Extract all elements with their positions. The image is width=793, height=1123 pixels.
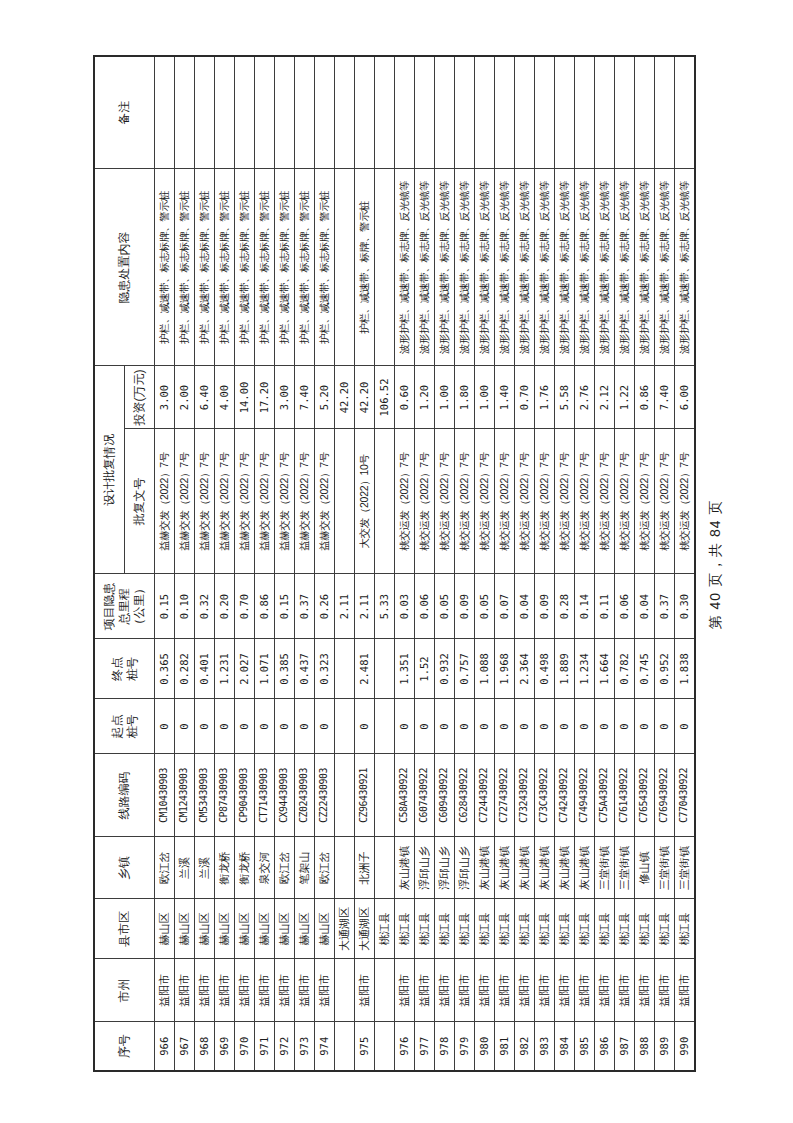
cell-seq: 981 (495, 1022, 515, 1071)
cell-remark (395, 56, 415, 169)
cell-county: 赫山区 (175, 899, 195, 959)
cell-city: 益阳市 (515, 959, 535, 1022)
cell-start: 0 (475, 699, 495, 754)
cell-seq: 982 (515, 1022, 535, 1071)
table-row: 967益阳市赫山区兰溪CM1243090300.2820.10益赫交发（2022… (175, 56, 195, 1071)
cell-remark (675, 56, 696, 169)
cell-remark (355, 56, 375, 169)
cell-end: 2.481 (355, 639, 375, 699)
cell-county: 桃江县 (675, 899, 696, 959)
cell-start (375, 699, 395, 754)
table-row: 987益阳市桃江县三堂街镇C76143092200.7820.06桃交运发（20… (615, 56, 635, 1071)
cell-county: 赫山区 (155, 899, 175, 959)
cell-remark (455, 56, 475, 169)
cell-doc: 益赫交发（2022）7号 (175, 429, 195, 574)
cell-start: 0 (315, 699, 335, 754)
cell-end: 1.968 (495, 639, 515, 699)
table-row: 989益阳市桃江县三堂街镇C76943092200.9520.37桃交运发（20… (655, 56, 675, 1071)
cell-town: 三堂街镇 (655, 837, 675, 899)
cell-seq: 969 (215, 1022, 235, 1071)
cell-content: 波形护栏、减速带、标志牌、反光镜等 (455, 169, 475, 366)
cell-doc: 益赫交发（2022）7号 (275, 429, 295, 574)
table-row: 983益阳市桃江县灰山港镇C73C43092200.4980.09桃交运发（20… (535, 56, 555, 1071)
cell-content: 波形护栏、减速带、标志牌、反光镜等 (495, 169, 515, 366)
cell-invest: 7.40 (295, 366, 315, 429)
cell-town (335, 837, 355, 899)
cell-county: 桃江县 (475, 899, 495, 959)
cell-end: 0.757 (455, 639, 475, 699)
cell-invest: 5.20 (315, 366, 335, 429)
table-row: 969益阳市赫山区衡龙桥CP8743090301.2310.20益赫交发（202… (215, 56, 235, 1071)
cell-end: 1.231 (215, 639, 235, 699)
cell-town: 灰山港镇 (475, 837, 495, 899)
cell-content: 护栏、减速带、标志标牌、警示桩 (295, 169, 315, 366)
cell-remark (335, 56, 355, 169)
cell-start: 0 (275, 699, 295, 754)
cell-remark (415, 56, 435, 169)
table-row: 968益阳市赫山区兰溪CM5343090300.4010.32益赫交发（2022… (195, 56, 215, 1071)
cell-county: 赫山区 (255, 899, 275, 959)
cell-remark (555, 56, 575, 169)
cell-end: 1.664 (595, 639, 615, 699)
cell-town: 欧江岔 (155, 837, 175, 899)
cell-town: 欧江岔 (315, 837, 335, 899)
cell-code: C770430922 (675, 754, 696, 837)
cell-invest: 7.40 (655, 366, 675, 429)
cell-seq: 987 (615, 1022, 635, 1071)
cell-content (375, 169, 395, 366)
table-row: 986益阳市桃江县三堂街镇C75A43092201.6640.11桃交运发（20… (595, 56, 615, 1071)
col-header-approval-doc: 批复文号 (125, 429, 155, 574)
cell-doc: 桃交运发（2022）7号 (395, 429, 415, 574)
cell-city (335, 959, 355, 1022)
cell-end: 0.401 (195, 639, 215, 699)
col-header-investment: 投资(万元) (125, 366, 155, 429)
cell-county: 桃江县 (455, 899, 475, 959)
cell-invest: 2.76 (575, 366, 595, 429)
table-row: 972益阳市赫山区欧江岔CX9443090300.3850.15益赫交发（202… (275, 56, 295, 1071)
cell-town (375, 837, 395, 899)
cell-code: C749430922 (575, 754, 595, 837)
cell-doc: 桃交运发（2022）7号 (475, 429, 495, 574)
table-row: 974益阳市赫山区欧江岔CZ2243090300.3230.26益赫交发（202… (315, 56, 335, 1071)
cell-start (335, 699, 355, 754)
cell-content: 波形护栏、减速带、标志牌、反光镜等 (655, 169, 675, 366)
cell-content: 波形护栏、减速带、标志牌、反光镜等 (675, 169, 696, 366)
cell-code: C607430922 (415, 754, 435, 837)
cell-seq: 990 (675, 1022, 696, 1071)
cell-city: 益阳市 (195, 959, 215, 1022)
cell-start: 0 (575, 699, 595, 754)
cell-invest: 42.20 (355, 366, 375, 429)
cell-town: 灰山港镇 (495, 837, 515, 899)
cell-seq: 968 (195, 1022, 215, 1071)
cell-mileage: 0.15 (155, 574, 175, 639)
cell-content: 波形护栏、减速带、标志牌、反光镜等 (575, 169, 595, 366)
cell-content: 护栏、减速带、标牌、警示桩 (355, 169, 375, 366)
cell-content: 护栏、减速带、标志标牌、警示桩 (215, 169, 235, 366)
table-row: 981益阳市桃江县灰山港镇C72743092201.9680.07桃交运发（20… (495, 56, 515, 1071)
cell-county: 赫山区 (195, 899, 215, 959)
cell-seq: 983 (535, 1022, 555, 1071)
cell-mileage: 0.05 (475, 574, 495, 639)
cell-town: 泉交河 (255, 837, 275, 899)
cell-county: 赫山区 (275, 899, 295, 959)
cell-content: 波形护栏、减速带、标志牌、反光镜等 (475, 169, 495, 366)
table-row: 977益阳市桃江县浮邱山乡C60743092201.520.06桃交运发（202… (415, 56, 435, 1071)
cell-doc: 桃交运发（2022）7号 (415, 429, 435, 574)
cell-doc: 益赫交发（2022）7号 (195, 429, 215, 574)
cell-county: 桃江县 (615, 899, 635, 959)
cell-county: 桃江县 (435, 899, 455, 959)
table-row: 984益阳市桃江县灰山港镇C74243092201.8890.28桃交运发（20… (555, 56, 575, 1071)
cell-remark (175, 56, 195, 169)
cell-code: C769430922 (655, 754, 675, 837)
cell-seq: 985 (575, 1022, 595, 1071)
cell-content (335, 169, 355, 366)
cell-seq: 971 (255, 1022, 275, 1071)
cell-city: 益阳市 (275, 959, 295, 1022)
cell-end: 1.838 (675, 639, 696, 699)
col-header-seq: 序号 (94, 1022, 155, 1071)
cell-town: 衡龙桥 (215, 837, 235, 899)
cell-code: CZ96430921 (355, 754, 375, 837)
cell-code: CZ22430903 (315, 754, 335, 837)
cell-invest: 6.40 (195, 366, 215, 429)
cell-end: 0.745 (635, 639, 655, 699)
cell-remark (495, 56, 515, 169)
cell-invest: 3.00 (155, 366, 175, 429)
table-row: 桃江县5.33106.52 (375, 56, 395, 1071)
cell-mileage: 0.30 (675, 574, 696, 639)
cell-seq: 977 (415, 1022, 435, 1071)
cell-seq: 966 (155, 1022, 175, 1071)
cell-mileage: 5.33 (375, 574, 395, 639)
cell-doc: 益赫交发（2022）7号 (235, 429, 255, 574)
cell-remark (295, 56, 315, 169)
cell-start: 0 (155, 699, 175, 754)
cell-content: 护栏、减速带、标志标牌、警示桩 (275, 169, 295, 366)
cell-town: 三堂街镇 (675, 837, 696, 899)
table-body: 966益阳市赫山区欧江岔CM1043090300.3650.15益赫交发（202… (155, 56, 696, 1071)
cell-mileage: 0.26 (315, 574, 335, 639)
cell-start: 0 (515, 699, 535, 754)
cell-mileage: 0.03 (395, 574, 415, 639)
cell-county: 赫山区 (315, 899, 335, 959)
cell-doc: 桃交运发（2022）7号 (615, 429, 635, 574)
cell-town: 三堂街镇 (595, 837, 615, 899)
cell-city: 益阳市 (455, 959, 475, 1022)
cell-town: 衡龙桥 (235, 837, 255, 899)
cell-seq (335, 1022, 355, 1071)
cell-end: 2.364 (515, 639, 535, 699)
cell-end (335, 639, 355, 699)
cell-content: 波形护栏、减速带、标志牌、反光镜等 (435, 169, 455, 366)
cell-town: 灰山港镇 (515, 837, 535, 899)
cell-doc: 桃交运发（2022）7号 (495, 429, 515, 574)
cell-invest: 1.22 (615, 366, 635, 429)
cell-mileage: 0.06 (415, 574, 435, 639)
cell-mileage: 0.14 (575, 574, 595, 639)
cell-doc (335, 429, 355, 574)
cell-remark (155, 56, 175, 169)
cell-seq: 988 (635, 1022, 655, 1071)
cell-end: 0.932 (435, 639, 455, 699)
cell-remark (535, 56, 555, 169)
cell-town: 浮邱山乡 (435, 837, 455, 899)
col-header-county: 县市区 (94, 899, 155, 959)
cell-remark (655, 56, 675, 169)
cell-invest: 42.20 (335, 366, 355, 429)
cell-end: 1.52 (415, 639, 435, 699)
cell-town: 灰山港镇 (575, 837, 595, 899)
cell-invest: 1.00 (435, 366, 455, 429)
cell-invest: 1.00 (475, 366, 495, 429)
cell-mileage: 0.32 (195, 574, 215, 639)
cell-code: C761430922 (615, 754, 635, 837)
cell-code: C765430922 (635, 754, 655, 837)
cell-end: 2.027 (235, 639, 255, 699)
cell-code (375, 754, 395, 837)
cell-mileage: 0.04 (515, 574, 535, 639)
cell-seq: 989 (655, 1022, 675, 1071)
cell-end: 0.385 (275, 639, 295, 699)
cell-invest: 5.58 (555, 366, 575, 429)
cell-start: 0 (295, 699, 315, 754)
cell-end: 0.498 (535, 639, 555, 699)
cell-county: 桃江县 (415, 899, 435, 959)
cell-remark (315, 56, 335, 169)
cell-start: 0 (555, 699, 575, 754)
cell-remark (375, 56, 395, 169)
cell-city: 益阳市 (595, 959, 615, 1022)
cell-content: 护栏、减速带、标志标牌、警示桩 (195, 169, 215, 366)
cell-end: 1.889 (555, 639, 575, 699)
table-row: 大通湖区2.1142.20 (335, 56, 355, 1071)
cell-invest: 1.40 (495, 366, 515, 429)
cell-seq: 986 (595, 1022, 615, 1071)
cell-mileage: 0.11 (595, 574, 615, 639)
cell-mileage: 0.86 (255, 574, 275, 639)
cell-seq: 976 (395, 1022, 415, 1071)
cell-start: 0 (395, 699, 415, 754)
cell-content: 波形护栏、减速带、标志牌、反光镜等 (515, 169, 535, 366)
cell-town: 兰溪 (175, 837, 195, 899)
cell-city: 益阳市 (415, 959, 435, 1022)
cell-town: 灰山港镇 (395, 837, 415, 899)
page-number-footer: 第 40 页，共 84 页 (707, 57, 725, 1072)
cell-content: 波形护栏、减速带、标志牌、反光镜等 (635, 169, 655, 366)
cell-end: 1.088 (475, 639, 495, 699)
cell-content: 波形护栏、减速带、标志牌、反光镜等 (615, 169, 635, 366)
cell-city: 益阳市 (395, 959, 415, 1022)
rotated-table-content: 序号 市州 县市区 乡镇 线路编码 起点 桩号 终点 桩号 项目隐患 总里程 （… (93, 57, 753, 1072)
cell-code: C724430922 (475, 754, 495, 837)
cell-doc: 桃交运发（2022）7号 (655, 429, 675, 574)
cell-mileage: 0.20 (215, 574, 235, 639)
cell-invest: 1.20 (415, 366, 435, 429)
cell-seq: 978 (435, 1022, 455, 1071)
cell-town: 浮邱山乡 (455, 837, 475, 899)
cell-doc: 益赫交发（2022）7号 (155, 429, 175, 574)
cell-remark (595, 56, 615, 169)
table-row: 988益阳市桃江县修山镇C76543092200.7450.04桃交运发（202… (635, 56, 655, 1071)
cell-city: 益阳市 (495, 959, 515, 1022)
cell-remark (475, 56, 495, 169)
cell-remark (235, 56, 255, 169)
cell-start: 0 (635, 699, 655, 754)
cell-invest: 0.60 (395, 366, 415, 429)
cell-city: 益阳市 (635, 959, 655, 1022)
cell-remark (255, 56, 275, 169)
cell-doc: 桃交运发（2022）7号 (675, 429, 696, 574)
cell-code: CM53430903 (195, 754, 215, 837)
cell-invest: 17.20 (255, 366, 275, 429)
cell-remark (515, 56, 535, 169)
cell-county: 桃江县 (375, 899, 395, 959)
cell-start: 0 (535, 699, 555, 754)
cell-seq: 974 (315, 1022, 335, 1071)
col-header-start-stake: 起点 桩号 (94, 699, 155, 754)
cell-county: 大通湖区 (335, 899, 355, 959)
cell-code (335, 754, 355, 837)
cell-city: 益阳市 (295, 959, 315, 1022)
cell-mileage: 0.07 (495, 574, 515, 639)
cell-doc: 桃交运发（2022）7号 (535, 429, 555, 574)
cell-code: CP87430903 (215, 754, 235, 837)
cell-mileage: 0.05 (435, 574, 455, 639)
cell-remark (575, 56, 595, 169)
col-header-end-stake: 终点 桩号 (94, 639, 155, 699)
cell-city: 益阳市 (255, 959, 275, 1022)
cell-doc: 桃交运发（2022）7号 (435, 429, 455, 574)
cell-seq: 967 (175, 1022, 195, 1071)
cell-invest: 2.12 (595, 366, 615, 429)
col-header-hazard-mileage: 项目隐患 总里程 （公里） (94, 574, 155, 639)
cell-seq: 984 (555, 1022, 575, 1071)
cell-end: 1.234 (575, 639, 595, 699)
table-row: 982益阳市桃江县灰山港镇C73243092202.3640.04桃交运发（20… (515, 56, 535, 1071)
cell-start: 0 (235, 699, 255, 754)
cell-end: 0.782 (615, 639, 635, 699)
cell-remark (635, 56, 655, 169)
cell-city: 益阳市 (235, 959, 255, 1022)
cell-mileage: 0.28 (555, 574, 575, 639)
cell-doc: 益赫交发（2022）7号 (215, 429, 235, 574)
cell-start: 0 (355, 699, 375, 754)
cell-code: C742430922 (555, 754, 575, 837)
cell-city: 益阳市 (555, 959, 575, 1022)
cell-city: 益阳市 (315, 959, 335, 1022)
cell-doc: 桃交运发（2022）7号 (455, 429, 475, 574)
cell-start: 0 (455, 699, 475, 754)
table-header: 序号 市州 县市区 乡镇 线路编码 起点 桩号 终点 桩号 项目隐患 总里程 （… (94, 56, 155, 1071)
table-row: 975益阳市大通湖区北洲子CZ9643092102.4812.11大交发（202… (355, 56, 375, 1071)
cell-county: 桃江县 (395, 899, 415, 959)
cell-code: C727430922 (495, 754, 515, 837)
cell-doc: 桃交运发（2022）7号 (515, 429, 535, 574)
cell-town: 兰溪 (195, 837, 215, 899)
cell-remark (195, 56, 215, 169)
cell-county: 赫山区 (215, 899, 235, 959)
cell-seq: 980 (475, 1022, 495, 1071)
cell-town: 北洲子 (355, 837, 375, 899)
cell-start: 0 (615, 699, 635, 754)
col-header-city: 市州 (94, 959, 155, 1022)
cell-doc (375, 429, 395, 574)
cell-seq (375, 1022, 395, 1071)
cell-invest: 106.52 (375, 366, 395, 429)
table-row: 971益阳市赫山区泉交河CT7143090301.0710.86益赫交发（202… (255, 56, 275, 1071)
cell-end: 0.437 (295, 639, 315, 699)
cell-content: 护栏、减速带、标志标牌、警示桩 (315, 169, 335, 366)
cell-content: 护栏、减速带、标志标牌、警示桩 (175, 169, 195, 366)
cell-county: 赫山区 (235, 899, 255, 959)
table-row: 976益阳市桃江县灰山港镇C58A43092201.3510.03桃交运发（20… (395, 56, 415, 1071)
cell-doc: 益赫交发（2022）7号 (315, 429, 335, 574)
cell-county: 桃江县 (635, 899, 655, 959)
cell-mileage: 0.37 (295, 574, 315, 639)
cell-content: 波形护栏、减速带、标志牌、反光镜等 (395, 169, 415, 366)
table-row: 966益阳市赫山区欧江岔CM1043090300.3650.15益赫交发（202… (155, 56, 175, 1071)
table-row: 990益阳市桃江县三堂街镇C77043092201.8380.30桃交运发（20… (675, 56, 696, 1071)
cell-mileage: 0.37 (655, 574, 675, 639)
cell-start: 0 (195, 699, 215, 754)
cell-town: 欧江岔 (275, 837, 295, 899)
cell-start: 0 (655, 699, 675, 754)
cell-mileage: 0.15 (275, 574, 295, 639)
col-header-treatment-content: 隐患处置内容 (94, 169, 155, 366)
cell-code: CZ02430903 (295, 754, 315, 837)
cell-code: CT71430903 (255, 754, 275, 837)
cell-town: 三堂街镇 (615, 837, 635, 899)
cell-code: C73C430922 (535, 754, 555, 837)
cell-county: 桃江县 (495, 899, 515, 959)
cell-mileage: 0.06 (615, 574, 635, 639)
cell-code: C628430922 (455, 754, 475, 837)
cell-code: C732430922 (515, 754, 535, 837)
cell-county: 桃江县 (535, 899, 555, 959)
cell-seq: 972 (275, 1022, 295, 1071)
cell-start: 0 (675, 699, 696, 754)
cell-doc: 大交发（2022）10号 (355, 429, 375, 574)
cell-start: 0 (215, 699, 235, 754)
cell-content: 波形护栏、减速带、标志牌、反光镜等 (595, 169, 615, 366)
cell-mileage: 0.09 (535, 574, 555, 639)
cell-city: 益阳市 (175, 959, 195, 1022)
cell-invest: 3.00 (275, 366, 295, 429)
cell-city: 益阳市 (655, 959, 675, 1022)
cell-city: 益阳市 (215, 959, 235, 1022)
cell-end: 0.952 (655, 639, 675, 699)
cell-start: 0 (595, 699, 615, 754)
cell-city: 益阳市 (435, 959, 455, 1022)
cell-remark (215, 56, 235, 169)
cell-code: C58A430922 (395, 754, 415, 837)
cell-town: 浮邱山乡 (415, 837, 435, 899)
cell-city: 益阳市 (475, 959, 495, 1022)
cell-doc: 益赫交发（2022）7号 (255, 429, 275, 574)
table-row: 978益阳市桃江县浮邱山乡C60943092200.9320.05桃交运发（20… (435, 56, 455, 1071)
col-header-remark: 备注 (94, 56, 155, 169)
cell-county: 桃江县 (575, 899, 595, 959)
cell-county: 赫山区 (295, 899, 315, 959)
cell-remark (615, 56, 635, 169)
cell-county: 大通湖区 (355, 899, 375, 959)
cell-start: 0 (495, 699, 515, 754)
cell-county: 桃江县 (655, 899, 675, 959)
cell-county: 桃江县 (555, 899, 575, 959)
